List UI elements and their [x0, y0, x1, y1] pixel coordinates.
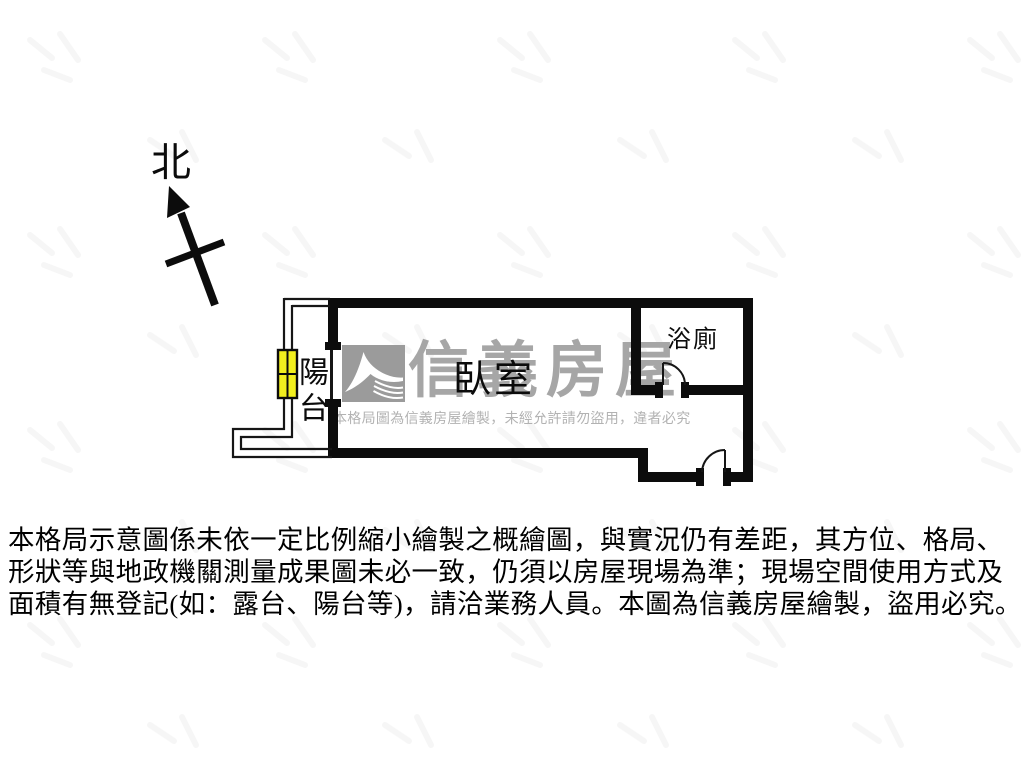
room-label-bedroom: 臥室	[453, 360, 535, 400]
labels: 北 陽台 臥室 浴廁	[0, 0, 1024, 768]
north-label: 北	[151, 141, 191, 185]
disclaimer-text: 本格局示意圖係未依一定比例縮小繪製之概繪圖，與實況仍有差距，其方位、格局、 形狀…	[8, 524, 1018, 620]
floor-plan-page: 信義房屋 本格局圖為信義房屋繪製，未經允許請勿盜用，違者必究	[0, 0, 1024, 768]
room-label-balcony: 陽台	[293, 356, 327, 428]
disclaimer-line-3: 面積有無登記(如：露台、陽台等)，請洽業務人員。本圖為信義房屋繪製，盜用必究。	[8, 588, 1018, 620]
disclaimer-line-2: 形狀等與地政機關測量成果圖未必一致，仍須以房屋現場為準；現場空間使用方式及	[8, 556, 1018, 588]
disclaimer-line-1: 本格局示意圖係未依一定比例縮小繪製之概繪圖，與實況仍有差距，其方位、格局、	[8, 524, 1018, 556]
room-label-bathroom: 浴廁	[667, 327, 719, 353]
